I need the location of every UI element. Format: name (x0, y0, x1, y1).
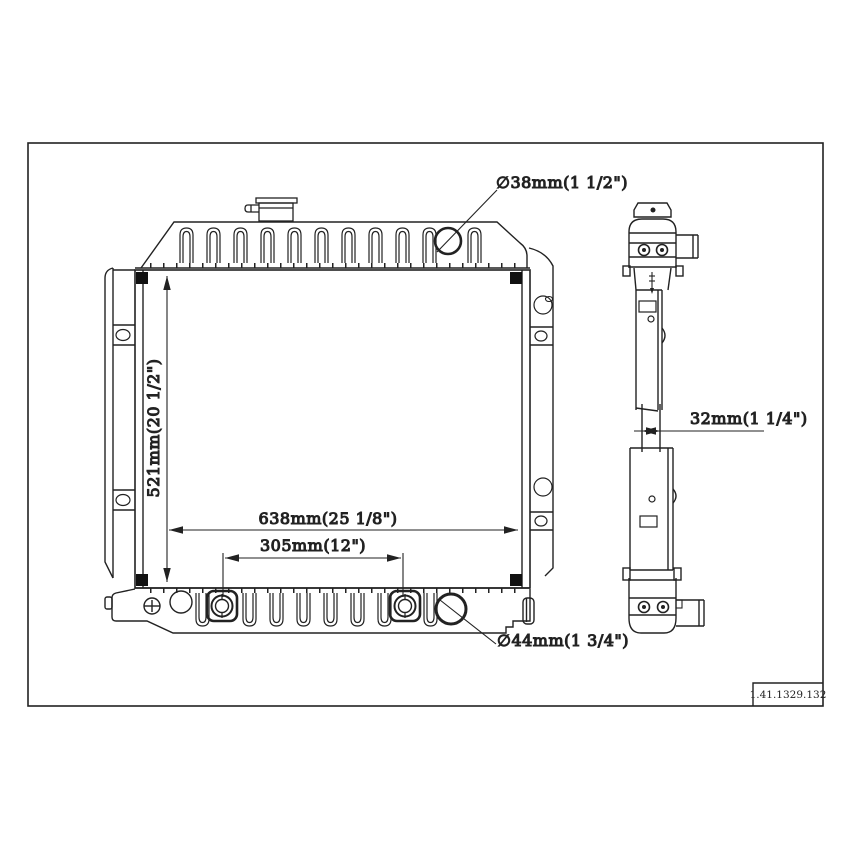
dim-height: 521mm(20 1/2") (144, 276, 167, 582)
outlet-pipe-side (676, 600, 704, 626)
right-bracket (529, 248, 553, 576)
mount-hole (170, 591, 192, 613)
bleed-screw-side (649, 272, 655, 294)
dim-core-thickness-label: 32mm(1 1/4") (690, 409, 808, 428)
left-bracket (105, 268, 135, 578)
dim-width-label: 638mm(25 1/8") (259, 509, 398, 528)
bottom-tank (105, 589, 534, 633)
dim-inlet-label: ∅38mm(1 1/2") (496, 173, 628, 192)
top-tank-outline (141, 222, 527, 268)
radiator-technical-drawing: 1.41.1329.132 (0, 0, 850, 850)
drawing-canvas: 1.41.1329.132 (0, 0, 850, 850)
title-block: 1.41.1329.132 (750, 683, 827, 706)
dim-width: 638mm(25 1/8") (169, 509, 518, 530)
filler-neck (245, 198, 297, 221)
dim-inlet: ∅38mm(1 1/2") (437, 173, 628, 252)
inlet-pipe-side (676, 235, 698, 258)
filler-cap-side (634, 203, 671, 217)
part-number: 1.41.1329.132 (750, 689, 827, 701)
front-view (105, 198, 553, 633)
side-bottom-tank (629, 578, 676, 633)
side-upper-core (636, 290, 665, 411)
cooler-fitting-left (207, 591, 237, 621)
dim-height-label: 521mm(20 1/2") (144, 359, 163, 498)
side-lower-core (630, 448, 676, 570)
dim-outlet-label: ∅44mm(1 3/4") (497, 631, 629, 650)
dim-fitting-spacing-label: 305mm(12") (260, 536, 366, 555)
drain-screw (144, 598, 160, 614)
cooler-fitting-right (390, 591, 420, 621)
